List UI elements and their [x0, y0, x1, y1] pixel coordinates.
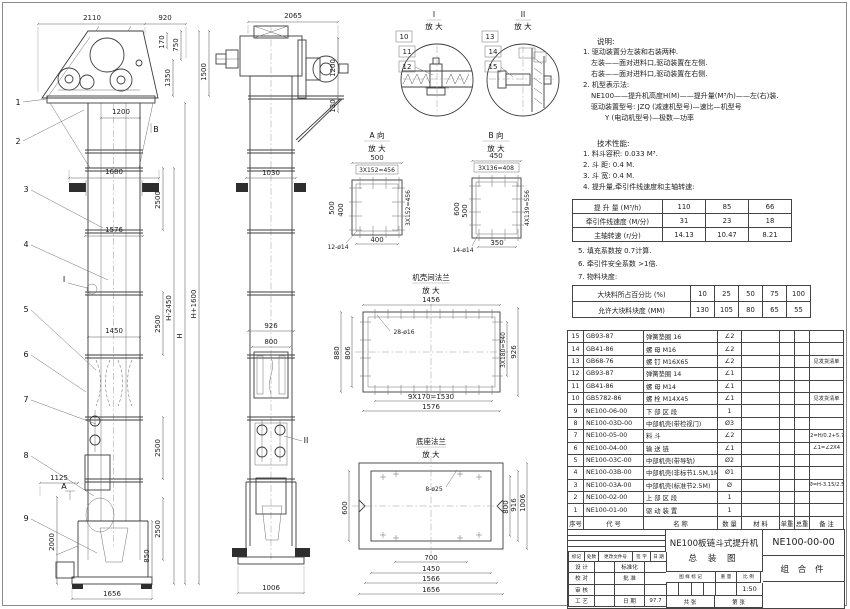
dim-label: 1576 — [422, 403, 440, 411]
bom-cell: 见发货清单 — [810, 356, 844, 368]
bom-cell: ∠1 — [718, 393, 742, 405]
bom-cell: 9 — [568, 405, 584, 417]
bom-cell — [742, 504, 780, 516]
callout-number: 5 — [23, 305, 28, 314]
bom-cell — [742, 331, 780, 343]
bom-cell — [810, 455, 844, 467]
bom-cell: 1 — [718, 405, 742, 417]
bom-cell — [795, 343, 810, 355]
signature-cell — [615, 585, 645, 596]
callout-number: 10 — [400, 33, 409, 41]
base-flange-title: 底座法兰 — [416, 436, 446, 446]
bom-cell: 螺 母 M14 — [644, 381, 718, 393]
dim-label: 2065 — [284, 12, 302, 20]
note-line: 2. 机型表示法: — [575, 80, 843, 91]
performance-table-cell: 31 — [663, 214, 706, 228]
lump-size-table-cell: 25 — [715, 286, 739, 302]
dim-label: 1030 — [262, 169, 280, 177]
bom-cell — [795, 492, 810, 504]
lump-size-table-cell: 55 — [787, 302, 811, 318]
bom-cell — [795, 393, 810, 405]
dim-label: H — [176, 333, 184, 338]
dim-label: 1200 — [329, 59, 337, 77]
bom-cell — [810, 418, 844, 430]
performance-table-cell: 提 升 量 (M³/h) — [573, 200, 663, 214]
bom-cell — [780, 443, 795, 455]
drawing-number: NE100-00-00 — [763, 530, 844, 556]
dim-label: 1576 — [105, 226, 123, 234]
signature-cell — [645, 562, 667, 573]
view-a-labels: A 向 放 大 500 3X152=456 500 400 3X152=456 … — [327, 130, 412, 251]
lump-size-table-cell: 10 — [691, 286, 715, 302]
signature-cell: 校 对 — [569, 573, 595, 584]
bom-cell: 上 部 区 段 — [644, 492, 718, 504]
callout-number: 6 — [23, 350, 28, 359]
bom-cell: 中部机壳(非标节1.5M,1M) — [644, 467, 718, 479]
dim-label: 450 — [489, 152, 502, 160]
tech-item: 4. 提升量,牵引件线速度和主轴转速: — [575, 182, 843, 193]
bom-cell — [780, 356, 795, 368]
dim-label: 3X180=540 — [500, 332, 507, 368]
bom-cell — [810, 405, 844, 417]
revision-header-row: 标记处数更改文件号签 字日 期 — [568, 552, 667, 562]
bom-cell — [780, 405, 795, 417]
bom-cell: GB93-87 — [584, 368, 644, 380]
bom-table: 15GB93-87弹簧垫圈 16∠214GB41-86螺 母 M16∠213GB… — [567, 330, 844, 517]
bom-cell: NE100-01-00 — [584, 504, 644, 516]
dim-label: 500 — [328, 201, 336, 214]
bom-cell — [795, 331, 810, 343]
detail-ii-labels: II 放 大 13 14 15 — [486, 10, 533, 71]
dim-label: H-2450 — [165, 295, 173, 321]
signature-cell — [595, 596, 615, 607]
dim-label: 400 — [370, 236, 383, 244]
bom-cell — [795, 504, 810, 516]
dim-label: 1566 — [422, 575, 440, 583]
title-block: 标记处数更改文件号签 字日 期 设 计标准化校 对批 准审 核工 艺日 期97.… — [567, 529, 845, 609]
revision-header-cell: 处数 — [585, 552, 599, 562]
bom-cell — [810, 331, 844, 343]
bom-cell: GB93-87 — [584, 331, 644, 343]
dim-label: 926 — [510, 345, 518, 359]
bom-cell — [780, 343, 795, 355]
dim-label: 3X136=408 — [478, 165, 514, 172]
lump-size-table-cell: 50 — [739, 286, 763, 302]
bom-cell: 1 — [568, 504, 584, 516]
performance-table-cell: 66 — [749, 200, 792, 214]
dim-label: 170 — [158, 35, 166, 48]
bom-cell: 11 — [568, 381, 584, 393]
bom-cell: Ø1 — [718, 467, 742, 479]
bom-cell — [780, 418, 795, 430]
view-b-title: B 向 — [488, 130, 503, 140]
performance-table-cell: 10.47 — [706, 228, 749, 242]
performance-table: 提 升 量 (M³/h)1108566牵引件线速度 (M/分)312318主轴转… — [572, 199, 792, 242]
note-line: NE100——提升机高度H(M)——提升量(M³/h)——左(右)装. — [575, 91, 843, 102]
bom-cell — [795, 368, 810, 380]
signature-cell: 日 期 — [615, 596, 645, 607]
bom-cell: 5 — [568, 455, 584, 467]
callout-number: 11 — [403, 48, 412, 56]
revision-header-cell: 签 字 — [633, 552, 651, 562]
bom-cell — [795, 381, 810, 393]
signature-cell — [645, 585, 667, 596]
bom-cell — [742, 343, 780, 355]
bom-cell — [795, 455, 810, 467]
bom-cell: 8 — [568, 418, 584, 430]
bom-cell: 螺 母 M16 — [644, 343, 718, 355]
bom-cell — [780, 381, 795, 393]
bom-cell: Ø — [718, 480, 742, 492]
bom-cell: NE100-05-00 — [584, 430, 644, 442]
dim-label: 750 — [172, 38, 180, 51]
tech-item: 2. 斗 距: 0.4 M. — [575, 160, 843, 171]
bom-cell: 料 斗 — [644, 430, 718, 442]
bom-cell — [742, 480, 780, 492]
bom-cell — [780, 492, 795, 504]
callout-number: 13 — [486, 33, 495, 41]
bom-cell: 中部机壳(带导轨) — [644, 455, 718, 467]
dim-label: 2500 — [154, 191, 162, 209]
lump-size-table-cell: 130 — [691, 302, 715, 318]
tech-item: 5. 填充系数按 0.7计算. — [578, 245, 838, 258]
bom-cell — [780, 467, 795, 479]
dim-label: 800 — [502, 500, 510, 513]
dim-label: 500 — [461, 204, 469, 217]
bom-cell: ∠2 — [718, 356, 742, 368]
front-view-labels: 2110 920 170 750 1350 1500 1200 1680 250… — [15, 14, 208, 598]
note-line: 左装——面对进料口,驱动装置在左侧. — [575, 58, 843, 69]
bom-cell: 2 — [568, 492, 584, 504]
dim-label: 500 — [370, 154, 383, 162]
casing-flange-title: 机壳间法兰 — [412, 272, 450, 282]
bom-cell: ∠1 — [718, 381, 742, 393]
bom-cell: 1 — [718, 504, 742, 516]
weight-value-cell — [716, 583, 737, 596]
callout-number: 1 — [15, 98, 20, 107]
part-class: 组 合 件 — [763, 556, 844, 582]
note-line: 驱动装置型号: JZQ (减速机型号)—速比—机型号 — [575, 102, 843, 113]
dim-label: 2500 — [154, 439, 162, 457]
bom-cell: NE100-04-00 — [584, 443, 644, 455]
bom-cell: 14 — [568, 343, 584, 355]
bom-header-row: 序号代 号名 称数 量材 料单重总重备 注 — [567, 516, 844, 530]
bom-cell: ∠1=∠2X4 — [810, 443, 844, 455]
signature-cell: 审 核 — [569, 585, 595, 596]
dim-label: 600 — [341, 501, 349, 514]
detail-ii-zoom-label: 放 大 — [514, 21, 532, 31]
bom-cell: 下 部 区 段 — [644, 405, 718, 417]
notes-block: 说明: 1. 驱动装置分左装和右装两种. 左装——面对进料口,驱动装置在左侧. … — [575, 36, 843, 124]
signature-cell: 97.7 — [645, 596, 667, 607]
bom-cell — [742, 492, 780, 504]
detail-i-zoom-label: 放 大 — [425, 21, 443, 31]
bom-cell: GB41-86 — [584, 343, 644, 355]
performance-table-cell: 23 — [706, 214, 749, 228]
bom-cell: 驱 动 装 置 — [644, 504, 718, 516]
lump-size-table-cell: 100 — [787, 286, 811, 302]
dim-label: 1350 — [164, 69, 172, 87]
tech-item: 3. 斗 宽: 0.4 M. — [575, 171, 843, 182]
revision-header-cell: 日 期 — [651, 552, 667, 562]
signature-cell: 批 准 — [615, 573, 645, 584]
bom-cell — [810, 368, 844, 380]
engineering-drawing-sheet: 2110 920 170 750 1350 1500 1200 1680 250… — [0, 0, 850, 609]
dim-label: 1456 — [422, 296, 440, 304]
revision-rows — [568, 530, 666, 552]
bom-cell: 1 — [718, 492, 742, 504]
bom-cell — [795, 418, 810, 430]
dim-label: 700 — [424, 554, 437, 562]
note-line: 1. 驱动装置分左装和右装两种. — [575, 47, 843, 58]
casing-flange-zoom-label: 放 大 — [422, 285, 440, 295]
tech-title: 技术性能: — [575, 138, 843, 149]
bom-cell — [810, 467, 844, 479]
view-b-labels: B 向 放 大 450 3X136=408 600 500 4X139=556 … — [452, 130, 531, 254]
dim-label: H+1600 — [190, 290, 198, 319]
callout-number: 2 — [15, 137, 20, 146]
callout-number: 7 — [23, 395, 28, 404]
lump-size-table-cell: 65 — [763, 302, 787, 318]
dim-label: 1200 — [112, 108, 130, 116]
bom-cell: Ø=H-3.15/2.5 — [810, 480, 844, 492]
dim-label: 806 — [344, 346, 352, 360]
bom-cell — [780, 455, 795, 467]
signature-cell — [595, 562, 615, 573]
callout-number: 15 — [489, 63, 498, 71]
tech-item: 7. 物料块度: — [578, 271, 838, 284]
sheet-total: 共 张 — [666, 596, 715, 608]
bom-cell: GB68-76 — [584, 356, 644, 368]
dim-label: 1656 — [422, 586, 440, 594]
dim-label: 14-ø14 — [452, 247, 473, 254]
dim-label: 2110 — [83, 14, 101, 22]
bom-cell — [742, 430, 780, 442]
base-flange-labels: 底座法兰 放 大 8-ø25 600 800 916 1006 700 1450… — [341, 436, 527, 594]
bom-cell — [795, 430, 810, 442]
stamp-header-cell: 重 量 — [716, 572, 737, 583]
bom-cell: NE100-03D-00 — [584, 418, 644, 430]
bom-cell: Ø2 — [718, 455, 742, 467]
sheet-number: 第 张 — [715, 596, 763, 608]
dim-label: 3X152=456 — [359, 167, 395, 174]
stamp-header-cell: 比 例 — [737, 572, 761, 583]
bom-cell: 15 — [568, 331, 584, 343]
bom-cell: 3 — [568, 480, 584, 492]
tech-spec-block: 技术性能: 1. 料斗容积: 0.033 M³. 2. 斗 距: 0.4 M. … — [575, 138, 843, 193]
bom-cell — [742, 443, 780, 455]
bom-cell: NE100-03B-00 — [584, 467, 644, 479]
dim-label: 916 — [510, 498, 518, 512]
stamp-header-cell: 图 样 标 记 — [666, 572, 716, 583]
bom-cell — [742, 393, 780, 405]
scale-value: 1:50 — [737, 583, 763, 596]
dim-label: 2500 — [154, 520, 162, 538]
bom-cell — [742, 368, 780, 380]
dim-label: 4X139=556 — [524, 190, 531, 226]
dim-label: 1656 — [103, 590, 121, 598]
callout-number: 3 — [23, 185, 28, 194]
notes-title: 说明: — [575, 36, 843, 47]
detail-marker-i: I — [63, 275, 65, 284]
bom-cell: 6 — [568, 443, 584, 455]
bom-cell: ∠2=H/0.2+5.75 — [810, 430, 844, 442]
tech-item: 6. 牵引件安全系数 >1倍. — [578, 258, 838, 271]
dim-label: 9X170=1530 — [408, 393, 454, 401]
dim-label: 8-ø25 — [425, 486, 442, 493]
bom-cell — [795, 405, 810, 417]
sheet-count-row: 共 张 第 张 — [666, 596, 763, 608]
bom-cell: 见发货清单 — [810, 393, 844, 405]
callout-number: 9 — [23, 514, 28, 523]
bom-cell — [810, 381, 844, 393]
dim-label: 880 — [333, 346, 341, 359]
bom-cell: GB5782-86 — [584, 393, 644, 405]
bom-cell — [795, 356, 810, 368]
bom-cell: 7 — [568, 430, 584, 442]
callout-number: 14 — [489, 48, 498, 56]
bom-cell: ∠1 — [718, 443, 742, 455]
dim-label: 2500 — [154, 315, 162, 333]
bom-cell: NE100-03C-00 — [584, 455, 644, 467]
performance-table-cell: 110 — [663, 200, 706, 214]
dim-label: 1500 — [200, 63, 208, 81]
bom-cell: 4 — [568, 467, 584, 479]
dim-label: 2000 — [48, 533, 56, 551]
view-a-zoom-label: 放 大 — [368, 143, 386, 153]
signature-cell — [645, 573, 667, 584]
revision-header-cell: 标记 — [569, 552, 585, 562]
bom-cell: ∠2 — [718, 430, 742, 442]
bom-cell: NE100-02-00 — [584, 492, 644, 504]
bom-cell — [742, 381, 780, 393]
lump-size-table-cell: 大块料所占百分比 (%) — [573, 286, 691, 302]
performance-table-cell: 85 — [706, 200, 749, 214]
bom-cell: ∠1 — [718, 368, 742, 380]
lump-size-table: 大块料所占百分比 (%)10255075100允许大块料块度 (MM)13010… — [572, 285, 811, 318]
signature-cell: 工 艺 — [569, 596, 595, 607]
dim-label: 850 — [143, 549, 151, 562]
bom-cell: 12 — [568, 368, 584, 380]
bom-cell: ∠2 — [718, 331, 742, 343]
signature-cell — [595, 585, 615, 596]
stamp-header-row: 图 样 标 记重 量比 例 — [666, 572, 761, 583]
bom-cell — [795, 443, 810, 455]
dim-label: 28-ø16 — [393, 329, 414, 336]
signature-grid: 设 计标准化校 对批 准审 核工 艺日 期97.7 — [568, 562, 667, 607]
performance-table-cell: 14.13 — [663, 228, 706, 242]
bom-cell — [780, 480, 795, 492]
section-marker-b: B — [153, 125, 159, 134]
dim-label: 350 — [490, 239, 503, 247]
performance-table-cell: 18 — [749, 214, 792, 228]
dim-label: 12-ø14 — [327, 244, 348, 251]
performance-table-cell: 主轴转速 (r/分) — [573, 228, 663, 242]
bom-cell: NE100-03A-00 — [584, 480, 644, 492]
lump-size-table-cell: 105 — [715, 302, 739, 318]
drawing-subtitle: 总 装 图 — [688, 552, 739, 564]
bom-cell — [795, 467, 810, 479]
stamp-boxes-row: 1:50 — [666, 583, 763, 596]
dim-label: 1006 — [519, 494, 527, 512]
callout-number: 12 — [403, 63, 412, 71]
signature-cell: 设 计 — [569, 562, 595, 573]
bom-cell — [742, 418, 780, 430]
dim-label: 600 — [453, 202, 461, 215]
bom-cell: 输 送 链 — [644, 443, 718, 455]
bom-cell: 中部机壳(带检视门) — [644, 418, 718, 430]
revision-header-cell: 更改文件号 — [599, 552, 633, 562]
dim-label: 1125 — [50, 474, 68, 482]
bom-cell — [742, 455, 780, 467]
bom-cell: 螺 栓 M14X45 — [644, 393, 718, 405]
bom-cell — [795, 480, 810, 492]
dim-label: 3X152=456 — [405, 190, 412, 226]
lump-size-table-cell: 允许大块料块度 (MM) — [573, 302, 691, 318]
bom-cell — [780, 368, 795, 380]
bom-cell: 13 — [568, 356, 584, 368]
dim-label: 926 — [264, 322, 278, 330]
detail-ii-title: II — [521, 10, 525, 19]
section-marker-a: A — [61, 482, 67, 491]
callout-number: 8 — [23, 451, 28, 460]
bom-cell — [742, 467, 780, 479]
dim-label: 1006 — [262, 584, 280, 592]
bom-cell — [810, 492, 844, 504]
view-a-title: A 向 — [369, 130, 384, 140]
bom-cell — [742, 405, 780, 417]
detail-i-title: I — [433, 10, 435, 19]
bom-cell: 10 — [568, 393, 584, 405]
performance-table-cell: 8.21 — [749, 228, 792, 242]
bom-cell: GB41-86 — [584, 381, 644, 393]
bom-cell — [810, 504, 844, 516]
dim-label: 920 — [158, 14, 171, 22]
bom-cell: NE100-06-00 — [584, 405, 644, 417]
note-line: 右装——面对进料口,驱动装置在右侧. — [575, 69, 843, 80]
drawing-title: NE100板链斗式提升机 — [670, 537, 758, 549]
bom-cell: 弹簧垫圈 14 — [644, 368, 718, 380]
dim-label: 800 — [264, 338, 277, 346]
performance-table-cell: 牵引件线速度 (M/分) — [573, 214, 663, 228]
dim-label: 1450 — [422, 565, 440, 573]
title-block-empty-cell — [763, 582, 844, 608]
bom-cell: ∠2 — [718, 343, 742, 355]
bom-cell — [810, 343, 844, 355]
signature-cell — [595, 573, 615, 584]
bom-cell: 螺 钉 M16X65 — [644, 356, 718, 368]
note-line: Y (电动机型号)—极数—功率 — [575, 113, 843, 124]
bom-cell — [780, 430, 795, 442]
dim-label: 1680 — [105, 168, 123, 176]
signature-cell: 标准化 — [615, 562, 645, 573]
tech-spec-block-2: 5. 填充系数按 0.7计算. 6. 牵引件安全系数 >1倍. 7. 物料块度: — [578, 245, 838, 284]
dim-label: 1450 — [105, 327, 123, 335]
dim-label: 130 — [329, 99, 337, 112]
casing-flange-labels: 机壳间法兰 放 大 1456 28-ø16 880 806 3X180=540 … — [333, 272, 518, 411]
callout-number: 4 — [23, 240, 28, 249]
bom-cell — [780, 331, 795, 343]
bom-cell — [780, 393, 795, 405]
dim-label: 400 — [337, 203, 345, 216]
lump-size-table-cell: 75 — [763, 286, 787, 302]
bom-cell: Ø3 — [718, 418, 742, 430]
base-flange-zoom-label: 放 大 — [422, 449, 440, 459]
bom-cell — [780, 504, 795, 516]
drawing-title-cell: NE100板链斗式提升机 总 装 图 — [666, 530, 763, 572]
tech-item: 1. 料斗容积: 0.033 M³. — [575, 149, 843, 160]
detail-marker-ii: II — [304, 436, 309, 445]
